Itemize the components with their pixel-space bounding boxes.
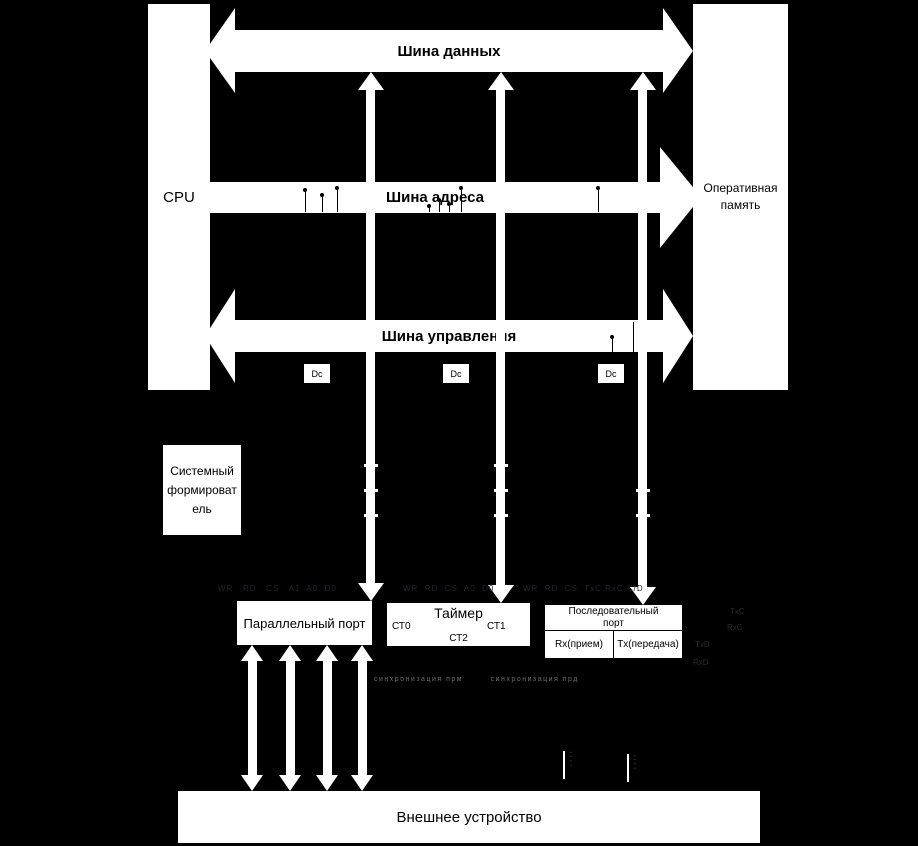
drop-line1-tick — [364, 514, 378, 517]
serial-side-label: RxD — [693, 658, 709, 667]
timer-block: Таймер СТ0 СТ1 СТ2 — [387, 603, 530, 646]
serial-port-block: Последовательный порт Rx(прием) Tx(перед… — [545, 605, 682, 658]
serial-port-label-line2: порт — [603, 618, 624, 630]
external-device-label: Внешнее устройство — [396, 809, 541, 826]
io-arrow4-down-arrowhead — [351, 775, 373, 791]
control-bus-cross-line — [633, 322, 634, 352]
serial-port-tx-cell: Tx(передача) — [614, 631, 682, 658]
drop-line1-tick — [364, 489, 378, 492]
serial-side-label: RxC — [727, 623, 743, 632]
ram-block: Оперативная память — [693, 4, 788, 390]
address-tap-stem — [305, 191, 306, 212]
drop-line2-stem — [496, 88, 505, 587]
external-device-block: Внешнее устройство — [178, 791, 760, 843]
data-bus-label: Шина данных — [235, 30, 663, 72]
control-bus-arrowhead-left — [205, 289, 235, 383]
timer-label: Таймер — [387, 605, 530, 621]
drop-line3-tick — [636, 514, 650, 517]
drop-line1-down-arrowhead — [358, 583, 384, 601]
serial-port-title-cell: Последовательный порт — [545, 605, 682, 631]
decoder-label: Dc — [606, 369, 617, 379]
io-arrow2-down-arrowhead — [279, 775, 301, 791]
address-tap-stem — [449, 205, 450, 212]
address-bus-label: Шина адреса — [210, 182, 660, 213]
system-former-line2: формироват — [167, 481, 237, 500]
drop-line1-tick — [364, 464, 378, 467]
address-tap-stem — [337, 189, 338, 212]
decoder-box: Dc — [443, 364, 469, 383]
io-arrow4-stem — [358, 659, 367, 777]
io-arrow2-stem — [286, 659, 295, 777]
timer-ct2-label: СТ2 — [387, 633, 530, 644]
serial-side-label: TxC — [730, 607, 745, 616]
address-tap-stem — [461, 189, 462, 212]
drop-line2-tick — [494, 514, 508, 517]
connector-glyph: ···· — [563, 751, 573, 779]
timer-pin-labels: WR RD CS A0 D0 — [403, 584, 494, 593]
address-tap-stem — [429, 207, 430, 212]
io-arrow3-stem — [323, 659, 332, 777]
drop-line3-tick — [636, 489, 650, 492]
connector-glyph: ···· — [627, 754, 637, 782]
serial-side-label: TxD — [695, 640, 710, 649]
system-former-block: Системный формироват ель — [163, 445, 241, 535]
cpu-label: CPU — [163, 189, 195, 206]
serial-port-rx-tx-row: Rx(прием) Tx(передача) — [545, 631, 682, 658]
io-arrow1-stem — [248, 659, 257, 777]
sync-note: синхронизация прм синхронизация прд — [374, 676, 579, 683]
parallel-port-label: Параллельный порт — [244, 616, 366, 631]
address-bus-arrowhead-right — [660, 147, 701, 248]
drop-line2-tick — [494, 464, 508, 467]
address-tap-stem — [322, 196, 323, 212]
system-former-line1: Системный — [170, 462, 234, 481]
ram-label-line2: память — [721, 197, 761, 214]
data-bus-arrowhead-left — [205, 8, 235, 93]
drop-line2-tick — [494, 489, 508, 492]
decoder-box: Dc — [304, 364, 330, 383]
drop-line1-stem — [366, 88, 375, 585]
parallel-port-block: Параллельный порт — [237, 601, 372, 645]
system-former-line3: ель — [192, 500, 212, 519]
decoder-label: Dc — [312, 369, 323, 379]
serial-port-label-line1: Последовательный — [569, 606, 659, 618]
timer-ct1-label: СТ1 — [487, 621, 506, 632]
decoder-label: Dc — [451, 369, 462, 379]
cpu-block: CPU — [148, 4, 210, 390]
control-bus-label: Шина управления — [235, 320, 663, 352]
serial-port-rx-cell: Rx(прием) — [545, 631, 614, 658]
serial-port-pin-labels: WR RD CS TxC RxC C/D — [523, 584, 644, 593]
io-arrow1-down-arrowhead — [241, 775, 263, 791]
diagram-canvas: CPU Оперативная память Системный формиро… — [0, 0, 918, 846]
control-tap-stem — [612, 338, 613, 352]
decoder-box: Dc — [598, 364, 624, 383]
parallel-port-pin-labels: WR RD CS A1 A0 D0 — [218, 584, 337, 593]
address-tap-stem — [439, 201, 440, 212]
control-bus-arrowhead-right — [663, 289, 693, 383]
timer-ct0-label: СТ0 — [392, 621, 411, 632]
data-bus-arrowhead-right — [663, 8, 693, 93]
address-tap-stem — [598, 189, 599, 212]
ram-label-line1: Оперативная — [704, 180, 778, 197]
io-arrow3-down-arrowhead — [316, 775, 338, 791]
